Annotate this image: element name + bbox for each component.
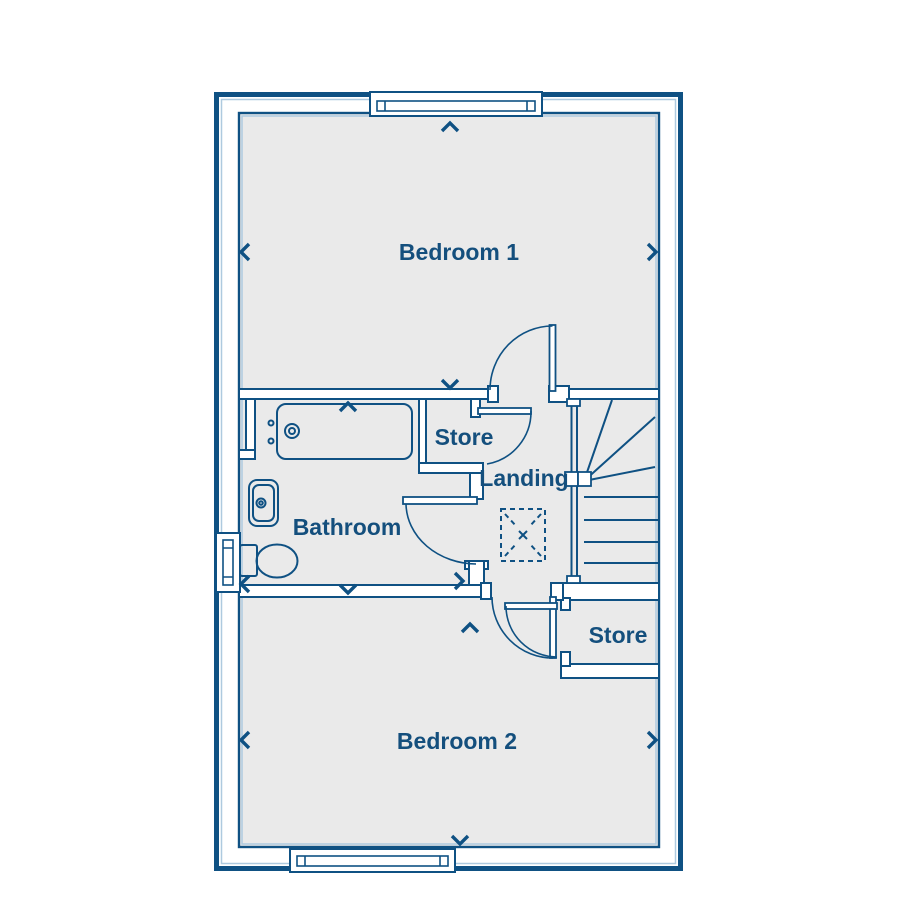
opening-bedroom2 <box>490 583 552 599</box>
stair-rail-cap-top <box>567 399 580 406</box>
label-store-lower: Store <box>589 622 648 648</box>
window-bathroom <box>216 533 240 592</box>
window-bottom <box>290 849 455 872</box>
jamb-store-lower-bottom <box>561 652 570 666</box>
label-store-upper: Store <box>435 424 494 450</box>
jamb-bedroom2-left <box>481 583 491 599</box>
wall-bathroom-store <box>419 399 426 473</box>
wall-bath-nook-vertical <box>246 399 255 452</box>
opening-bedroom1 <box>497 387 551 401</box>
label-landing: Landing <box>479 465 568 491</box>
wall-bath-nook-horizontal <box>239 450 255 459</box>
label-bedroom-1: Bedroom 1 <box>399 239 519 265</box>
wall-store-lower-south <box>561 664 659 678</box>
wall-bedroom1-south <box>239 389 659 399</box>
stair-newel-right <box>578 472 591 486</box>
label-bathroom: Bathroom <box>293 514 402 540</box>
floor-plan-page: Bedroom 1 Store Landing Bathroom Store B… <box>0 0 900 900</box>
stair-rail-cap-bottom <box>567 576 580 583</box>
floor-plan: Bedroom 1 Store Landing Bathroom Store B… <box>0 0 900 900</box>
wall-store-upper-south <box>419 463 483 473</box>
window-top <box>370 92 542 116</box>
label-bedroom-2: Bedroom 2 <box>397 728 517 754</box>
